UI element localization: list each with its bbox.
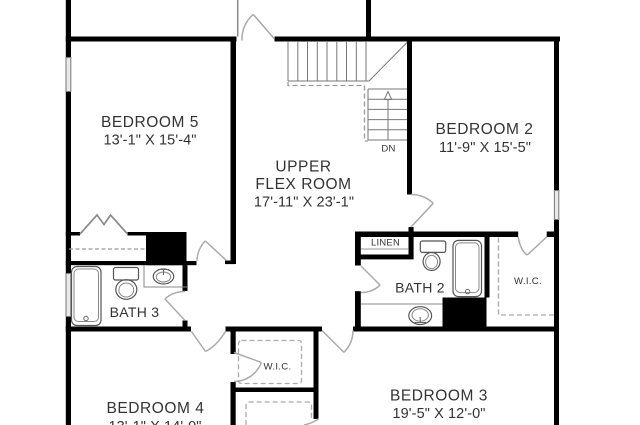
svg-text:W.I.C.: W.I.C. [264,362,292,373]
svg-text:BEDROOM 3: BEDROOM 3 [390,387,488,404]
svg-text:BATH 3: BATH 3 [110,304,160,320]
svg-text:17'-11" X 23'-1": 17'-11" X 23'-1" [254,195,354,211]
svg-text:LINEN: LINEN [371,237,400,248]
svg-text:BEDROOM 2: BEDROOM 2 [436,121,534,138]
svg-text:DN: DN [381,144,395,155]
svg-text:BEDROOM 5: BEDROOM 5 [101,114,199,131]
svg-text:BATH 2: BATH 2 [395,280,445,296]
svg-text:11'-9" X 15'-5": 11'-9" X 15'-5" [439,140,531,156]
svg-text:FLEX ROOM: FLEX ROOM [255,176,351,193]
svg-text:W.I.C.: W.I.C. [514,276,542,287]
svg-text:13'-1" X 15'-4": 13'-1" X 15'-4" [103,133,196,149]
svg-text:BEDROOM 4: BEDROOM 4 [107,400,205,417]
svg-text:13'-1" X 14'-0": 13'-1" X 14'-0" [108,419,201,425]
svg-text:19'-5" X 12'-0": 19'-5" X 12'-0" [392,406,485,422]
svg-text:UPPER: UPPER [275,159,331,176]
